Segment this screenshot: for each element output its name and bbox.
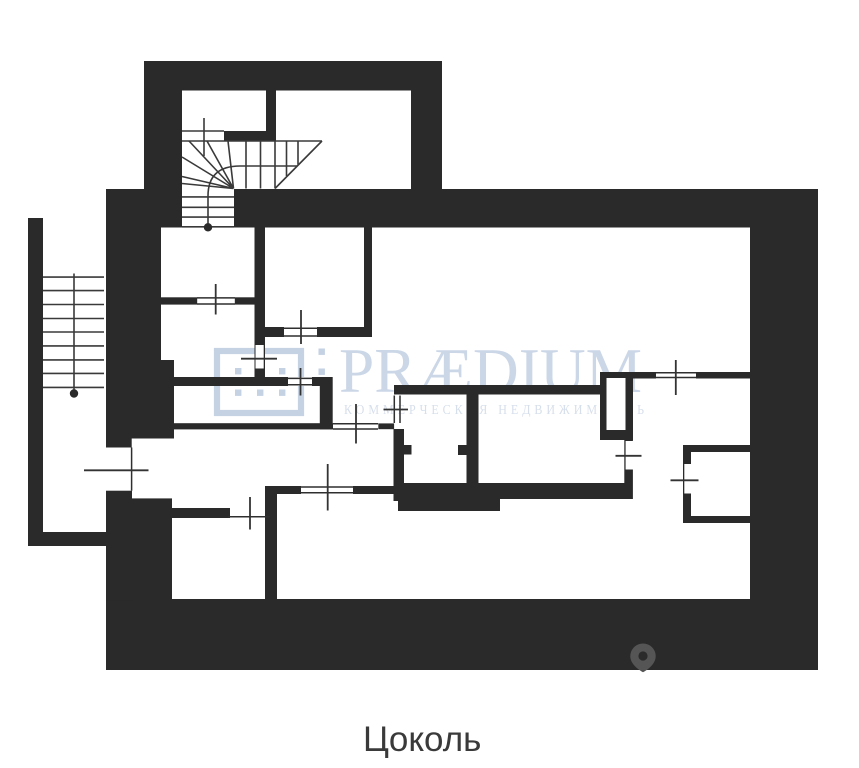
svg-text:Цоколь: Цоколь [363,720,481,759]
svg-text:PRÆDIUM: PRÆDIUM [339,336,642,406]
